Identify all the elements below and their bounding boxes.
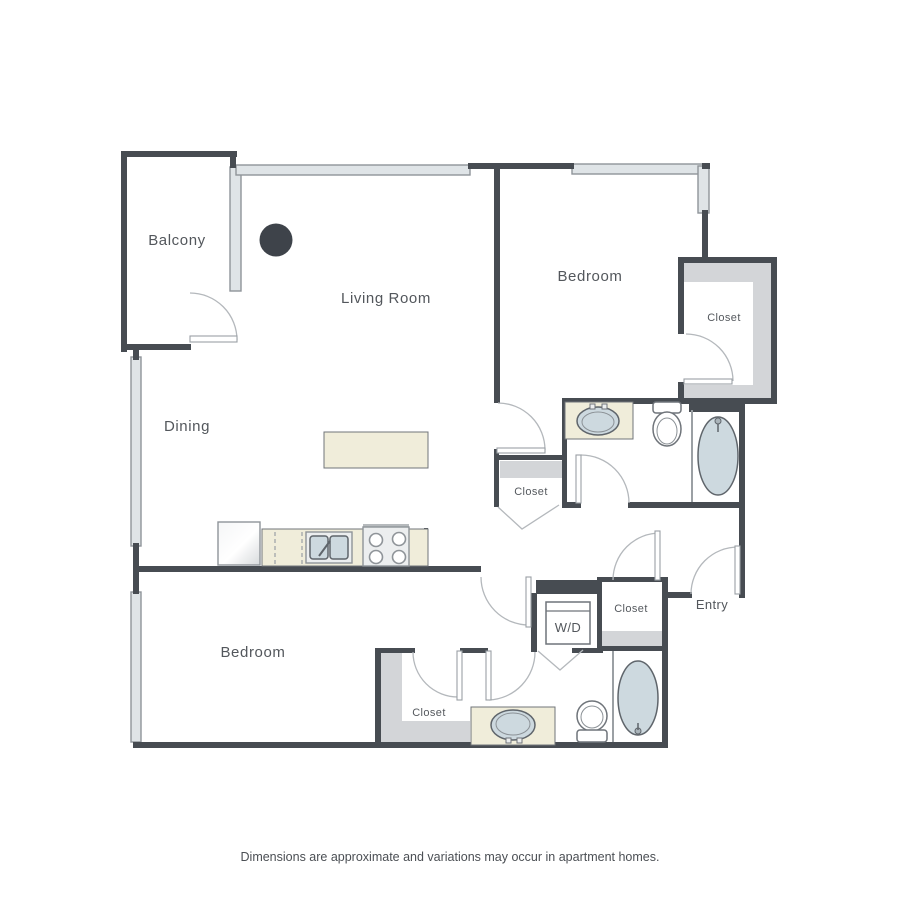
closet-top-right-shelf <box>684 385 771 398</box>
balcony-window <box>230 167 241 291</box>
wall <box>597 646 666 651</box>
floorplan-page: Balcony Living Room Bedroom Dining Bedro… <box>0 0 900 900</box>
structural-column <box>260 224 293 257</box>
floorplan-svg: Balcony Living Room Bedroom Dining Bedro… <box>0 0 900 900</box>
wall <box>536 580 599 594</box>
bedroom-bottom-door-arc <box>481 577 529 625</box>
entry-closet-door <box>655 531 660 580</box>
entry-door <box>735 546 740 594</box>
wall <box>494 166 500 403</box>
hall-closet-shelf <box>500 461 562 478</box>
wall <box>662 577 668 748</box>
balcony-label: Balcony <box>148 232 206 249</box>
wall <box>494 449 499 507</box>
wall <box>771 257 777 404</box>
dining-window <box>131 357 141 546</box>
wall <box>531 593 537 652</box>
wall <box>702 210 708 260</box>
hall-closet-label: Closet <box>514 486 548 498</box>
wall <box>702 163 710 169</box>
toilet-tank <box>577 730 607 742</box>
wall <box>628 502 745 508</box>
kitchen-island <box>324 432 428 468</box>
faucet-handle <box>517 738 522 743</box>
bedroom-top-door <box>497 448 545 453</box>
wall <box>375 648 381 748</box>
walls <box>121 151 777 748</box>
wall <box>121 151 127 352</box>
living-room-window <box>236 165 470 175</box>
bedroom2-closet-label: Closet <box>412 707 446 719</box>
entry-door-arc <box>691 547 738 594</box>
bathroom1-door <box>576 455 581 503</box>
bathroom2-door <box>486 651 491 700</box>
disclaimer-text: Dimensions are approximate and variation… <box>241 850 660 864</box>
bedroom-bottom-door <box>526 577 531 627</box>
closet-top-right-shelf <box>753 263 771 398</box>
faucet-handle <box>602 404 607 409</box>
hall-closet-bifold-door <box>498 505 559 529</box>
bedroom2-closet-door-arc <box>413 652 458 697</box>
wall <box>133 566 481 572</box>
faucet-handle <box>590 404 595 409</box>
wall <box>133 742 668 748</box>
wall <box>572 648 603 653</box>
wall <box>121 344 191 350</box>
bathroom1-sink <box>577 407 619 435</box>
entry-closet-shelf <box>602 631 662 646</box>
tub-alcove-line <box>612 651 614 742</box>
stove-burner <box>370 551 383 564</box>
living-room-label: Living Room <box>341 290 431 307</box>
wall <box>494 455 567 460</box>
laundry-label: W/D <box>555 620 581 635</box>
kitchen-sink-basin <box>330 536 348 559</box>
wall <box>133 348 139 360</box>
entry-closet-door-arc <box>613 533 660 580</box>
wall <box>121 151 237 157</box>
wall <box>678 257 777 263</box>
stove-burner <box>393 533 406 546</box>
balcony-door <box>190 336 237 342</box>
bedroom-top-label: Bedroom <box>557 268 622 285</box>
bedroom-top-side-window <box>698 166 709 213</box>
stove-burner <box>370 534 383 547</box>
dining-label: Dining <box>164 418 210 435</box>
bedroom-bottom-window <box>131 592 141 742</box>
bedroom-top-window <box>572 164 706 174</box>
wall <box>678 257 684 334</box>
bedroom2-closet-shelf <box>381 721 470 742</box>
kitchen <box>218 432 428 566</box>
wall <box>689 404 740 412</box>
bedroom-top-door-arc <box>498 403 545 450</box>
tub-alcove-line <box>691 410 693 502</box>
faucet-handle <box>506 738 511 743</box>
entry-closet-label: Closet <box>614 603 648 615</box>
bathroom2-door-arc <box>489 652 535 700</box>
wall <box>230 151 236 168</box>
wall <box>460 648 488 653</box>
bedroom2-closet-door <box>457 651 462 700</box>
entry-label: Entry <box>696 597 728 612</box>
wall <box>597 577 602 650</box>
bathroom-top <box>565 402 738 495</box>
refrigerator <box>218 522 260 565</box>
wall <box>468 163 574 169</box>
closet-top-right-door-arc <box>686 334 733 381</box>
balcony-door-arc <box>190 293 237 340</box>
closet-top-right-label: Closet <box>707 312 741 324</box>
bathroom1-door-arc <box>581 455 629 503</box>
stove-burner <box>393 551 406 564</box>
wall <box>662 592 692 598</box>
bedroom-bottom-label: Bedroom <box>220 644 285 661</box>
bathtub-faucet <box>715 418 721 424</box>
closet-top-right-door <box>684 379 732 384</box>
